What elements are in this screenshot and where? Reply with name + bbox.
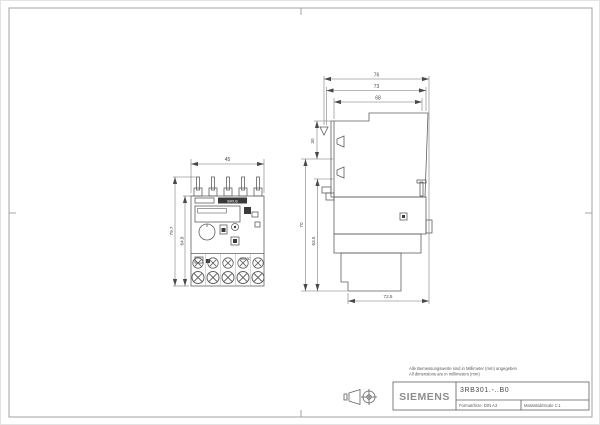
dim-side-top-section: 30	[310, 138, 315, 144]
side-funnel-lower	[337, 167, 344, 178]
dim-front-width: 45	[225, 157, 231, 163]
dim-side-bottom-depth: 72.5	[384, 294, 393, 299]
side-rail-step-2	[326, 193, 334, 200]
sheet-frame	[9, 8, 592, 417]
front-reset-dot	[234, 226, 236, 228]
front-small-square-2	[255, 222, 260, 227]
front-brand-bar-text: SIRIUS	[227, 199, 238, 203]
dim-side-inner-depth: 68	[375, 96, 381, 102]
format-field: Format/Size: DIN A3	[459, 403, 498, 408]
note-line-german: Alle Bemessungswerte sind in Millimeter …	[409, 366, 518, 371]
technical-drawing: SIRIUS 3RB30	[1, 1, 600, 425]
side-screw-head	[417, 180, 426, 183]
side-lower-block-a	[334, 197, 426, 234]
front-label-window	[195, 198, 214, 203]
scale-field: Massstab/Scale 1:1	[524, 403, 561, 408]
side-screw-shaft	[420, 182, 423, 196]
projection-cone-icon	[349, 390, 360, 405]
side-rail-step-1	[322, 187, 331, 193]
drawing-border	[9, 8, 592, 417]
dim-side-lower-height: 70	[299, 222, 304, 228]
siemens-logo: SIEMENS	[399, 391, 450, 403]
front-small-square-1	[252, 212, 258, 217]
dim-front-total-height: 79.7	[169, 226, 174, 235]
front-stop-button	[233, 239, 237, 243]
dim-front-body-height: 64.8	[180, 236, 185, 245]
side-block-detail-dot	[402, 215, 405, 218]
projection-end-bar	[344, 394, 347, 400]
title-block: SIEMENS 3RB301.-..B0 Format/Size: DIN A3…	[393, 382, 589, 410]
dim-side-upper-depth: 73	[374, 84, 380, 90]
dim-side-inner-height: 63.5	[311, 236, 316, 245]
front-dial-scale	[198, 209, 227, 214]
note-line-english: All dimensions are in millimeters (mm)	[409, 372, 480, 377]
part-number: 3RB301.-..B0	[460, 387, 509, 394]
side-lower-block-c	[341, 253, 401, 291]
front-terminal-pins	[194, 177, 262, 196]
dimension-notes: Alle Bemessungswerte sind in Millimeter …	[409, 366, 518, 377]
side-lower-block-b	[334, 234, 421, 253]
side-view-dimensions: 76 73 68 30 70 63.5 72.5	[299, 73, 429, 305]
drawing-sheet: SIRIUS 3RB30	[0, 0, 600, 425]
side-view	[320, 113, 432, 291]
front-screw-row-lower	[192, 272, 264, 284]
projection-symbol	[344, 389, 377, 405]
side-upper-housing	[331, 113, 428, 197]
front-view: SIRIUS 3RB30	[191, 177, 264, 286]
front-selector-knob	[222, 228, 226, 232]
side-top-clip	[320, 127, 328, 135]
dim-side-overall-depth: 76	[374, 73, 380, 79]
front-indicator-dark	[244, 207, 251, 214]
side-funnel-upper	[337, 136, 344, 147]
